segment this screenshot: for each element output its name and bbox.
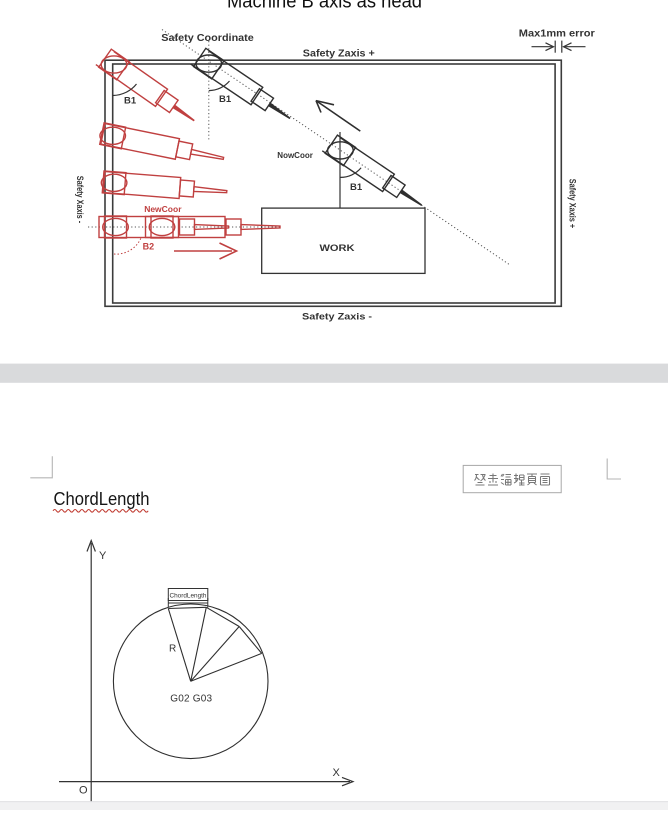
svg-text:ChordLength: ChordLength	[54, 489, 150, 509]
svg-text:B1: B1	[219, 94, 232, 105]
svg-text:Y: Y	[99, 550, 107, 562]
svg-text:R: R	[169, 644, 176, 655]
svg-text:NewCoor: NewCoor	[144, 204, 182, 214]
svg-text:G02 G03: G02 G03	[170, 694, 212, 705]
svg-text:B1: B1	[350, 182, 363, 193]
svg-text:Safety Zaxis +: Safety Zaxis +	[303, 49, 375, 60]
svg-text:B1: B1	[124, 96, 137, 107]
svg-text:Safety Zaxis -: Safety Zaxis -	[302, 312, 372, 323]
svg-text:X: X	[333, 767, 341, 779]
svg-text:Safety Xaxis -: Safety Xaxis -	[75, 176, 85, 224]
svg-text:Safety Xaxis +: Safety Xaxis +	[568, 179, 578, 229]
svg-text:Machine B axis as head: Machine B axis as head	[227, 0, 422, 12]
svg-text:WORK: WORK	[320, 243, 355, 254]
svg-text:ChordLength: ChordLength	[170, 592, 207, 599]
svg-text:Max1mm error: Max1mm error	[519, 29, 595, 40]
svg-text:Safety Coordinate: Safety Coordinate	[161, 32, 254, 44]
svg-text:B2: B2	[143, 242, 155, 252]
svg-text:O: O	[79, 785, 88, 797]
svg-text:NowCoor: NowCoor	[277, 151, 313, 160]
